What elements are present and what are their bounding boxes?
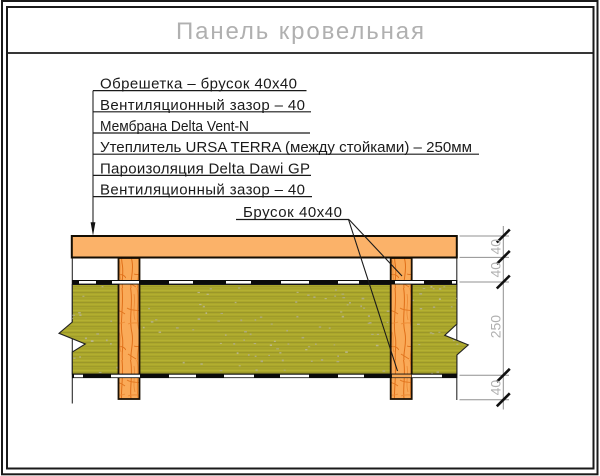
svg-text:40: 40 (488, 262, 504, 278)
svg-text:Брусок 40х40: Брусок 40х40 (243, 204, 342, 221)
svg-text:40: 40 (488, 380, 504, 396)
svg-text:250: 250 (488, 315, 504, 339)
svg-text:Панель кровельная: Панель кровельная (176, 18, 424, 45)
svg-text:40: 40 (488, 239, 504, 255)
